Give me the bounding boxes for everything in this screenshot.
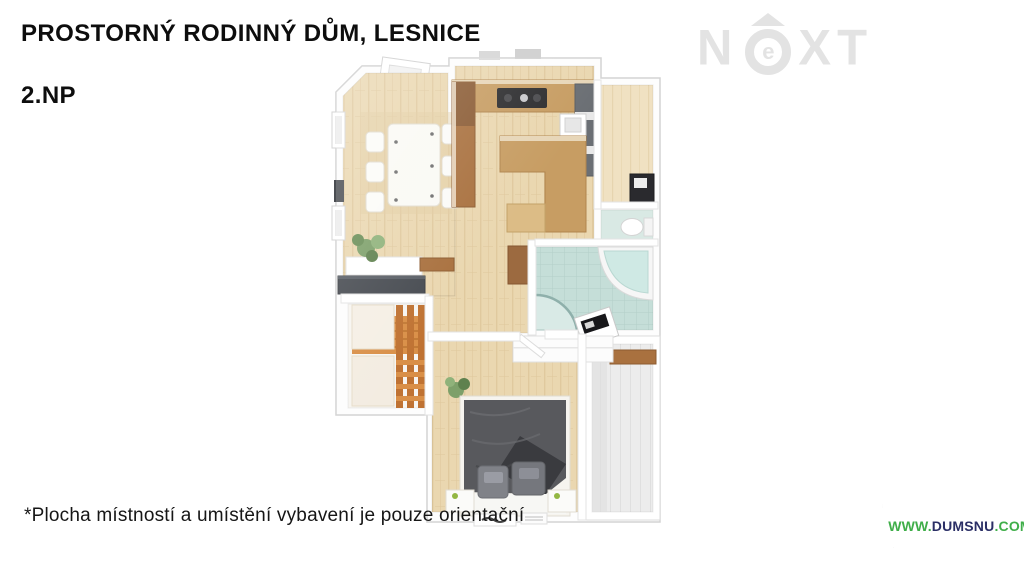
website-tld: .COM bbox=[994, 518, 1024, 534]
website-badge: WWW.DUMSNU.COM bbox=[882, 504, 1024, 548]
flyer-page: PROSTORNÝ RODINNÝ DŮM, LESNICE 2.NP N e … bbox=[0, 0, 1024, 575]
light-sheen bbox=[336, 58, 660, 522]
website-prefix: WWW. bbox=[888, 518, 932, 534]
floorplan-image bbox=[0, 0, 1024, 575]
disclaimer-text: *Plocha místností a umístění vybavení je… bbox=[24, 505, 524, 527]
roof-vent bbox=[515, 49, 541, 59]
website-domain: DUMSNU bbox=[932, 518, 995, 534]
